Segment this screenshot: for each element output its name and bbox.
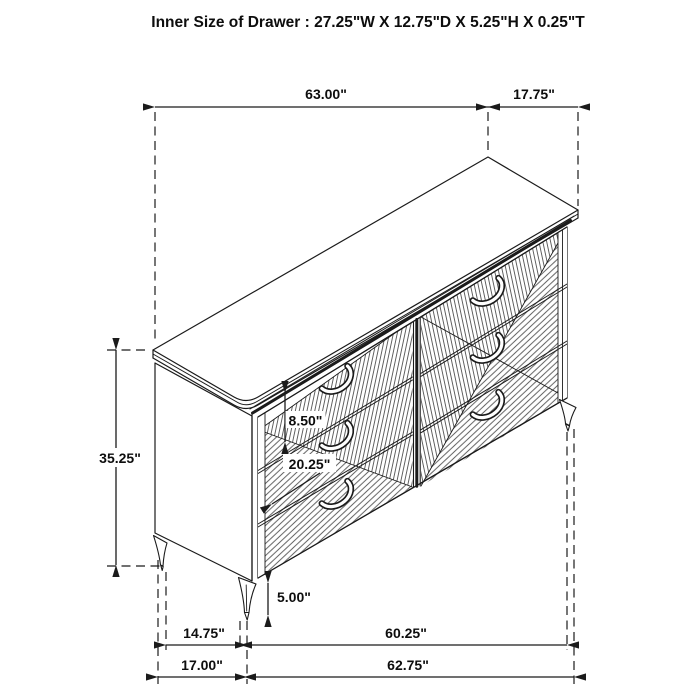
dimension-floor-depth: 17.00" [158, 657, 244, 677]
dimension-overall-height: 35.25" [94, 350, 146, 565]
dimension-floor-width: 62.75" [247, 657, 574, 677]
dimension-base-depth: 14.75" [166, 625, 240, 645]
dimension-leg-height: 5.00" [268, 583, 311, 615]
dim-top-length-label: 63.00" [305, 86, 347, 102]
dim-top-depth-label: 17.75" [513, 86, 555, 102]
dim-drawer-width-label: 20.25" [289, 456, 331, 472]
dimension-top-length: 63.00" [155, 86, 488, 107]
dim-floor-width-label: 62.75" [387, 657, 429, 673]
page-title: Inner Size of Drawer : 27.25"W X 12.75"D… [151, 14, 585, 31]
dresser-dimension-drawing: Inner Size of Drawer : 27.25"W X 12.75"D… [0, 0, 700, 700]
furniture-dimension-diagram: Inner Size of Drawer : 27.25"W X 12.75"D… [0, 0, 700, 700]
dimension-top-depth: 17.75" [488, 86, 578, 107]
dim-floor-depth-label: 17.00" [181, 657, 223, 673]
dim-leg-height-label: 5.00" [277, 589, 311, 605]
dim-overall-height-label: 35.25" [99, 450, 141, 466]
dim-base-width-label: 60.25" [385, 625, 427, 641]
dim-base-depth-label: 14.75" [183, 625, 225, 641]
dimension-base-width: 60.25" [247, 625, 567, 645]
dim-drawer-face-height-label: 8.50" [289, 413, 323, 429]
dresser-illustration [153, 157, 578, 620]
